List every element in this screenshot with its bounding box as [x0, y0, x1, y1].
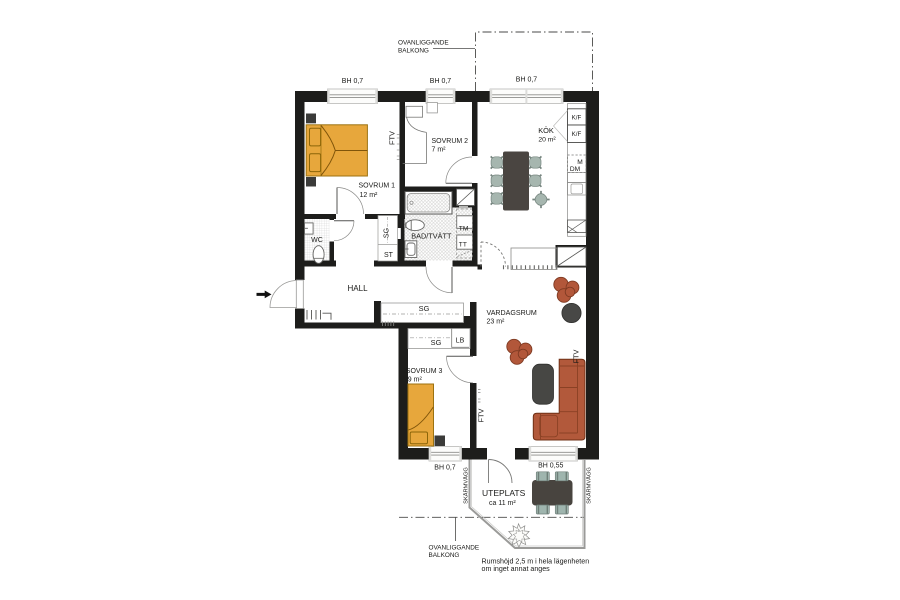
svg-text:BALKONG: BALKONG: [398, 48, 429, 55]
svg-text:OVANLIGGANDE: OVANLIGGANDE: [429, 545, 480, 552]
svg-text:23 m²: 23 m²: [487, 319, 506, 326]
svg-text:BH 0,7: BH 0,7: [434, 464, 456, 471]
svg-text:BAD/TVÄTT: BAD/TVÄTT: [411, 231, 452, 240]
svg-text:TM: TM: [459, 226, 469, 233]
svg-text:M: M: [577, 159, 583, 166]
svg-text:20 m²: 20 m²: [538, 137, 556, 144]
svg-text:K/F: K/F: [572, 131, 582, 138]
svg-text:BALKONG: BALKONG: [429, 552, 460, 559]
svg-text:BH 0,7: BH 0,7: [516, 77, 538, 84]
svg-text:LB: LB: [456, 337, 465, 344]
svg-text:BH 0,55: BH 0,55: [538, 463, 563, 470]
svg-text:SKÄRMVÄGG: SKÄRMVÄGG: [463, 467, 470, 504]
svg-text:WC: WC: [311, 237, 323, 244]
svg-text:VARDAGSRUM: VARDAGSRUM: [487, 309, 537, 317]
svg-text:SOVRUM 3: SOVRUM 3: [406, 368, 443, 375]
svg-text:SOVRUM 2: SOVRUM 2: [432, 138, 469, 145]
svg-text:ST: ST: [384, 252, 394, 259]
svg-text:om inget annat anges: om inget annat anges: [482, 565, 551, 573]
svg-text:BH 0,7: BH 0,7: [430, 78, 452, 85]
svg-text:ca 11 m²: ca 11 m²: [489, 500, 516, 507]
svg-text:DM: DM: [570, 166, 580, 173]
svg-text:FTV: FTV: [572, 349, 581, 363]
svg-text:BH 0,7: BH 0,7: [342, 78, 364, 85]
svg-text:SKÄRMVÄGG: SKÄRMVÄGG: [586, 467, 593, 504]
svg-text:SG: SG: [419, 304, 430, 313]
svg-text:HALL: HALL: [348, 284, 369, 293]
svg-text:FTV: FTV: [388, 131, 397, 145]
svg-text:TT: TT: [459, 241, 467, 248]
svg-text:7 m²: 7 m²: [432, 147, 447, 154]
svg-text:KÖK: KÖK: [538, 126, 554, 135]
svg-text:FTV: FTV: [477, 408, 486, 422]
svg-text:SOVRUM 1: SOVRUM 1: [359, 183, 396, 190]
svg-text:K/F: K/F: [572, 115, 582, 122]
svg-text:UTEPLATS: UTEPLATS: [482, 488, 526, 498]
svg-text:SG: SG: [431, 338, 442, 347]
svg-text:OVANLIGGANDE: OVANLIGGANDE: [398, 40, 449, 47]
svg-text:SG: SG: [384, 228, 391, 238]
svg-text:12 m²: 12 m²: [360, 192, 379, 199]
svg-text:9 m²: 9 m²: [408, 377, 423, 384]
